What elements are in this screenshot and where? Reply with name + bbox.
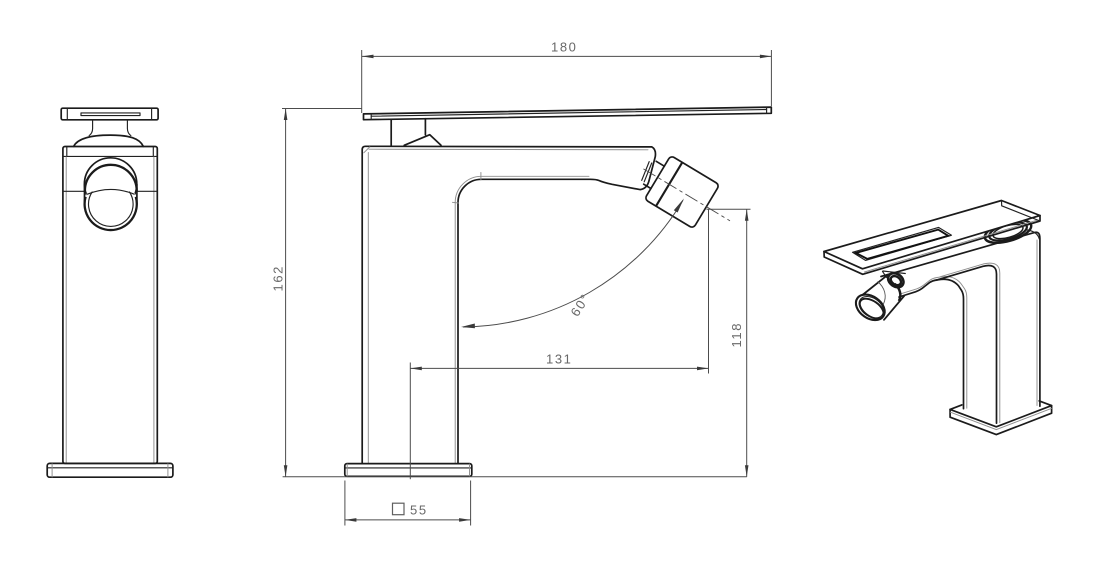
svg-text:131: 131: [546, 352, 573, 367]
svg-text:118: 118: [729, 322, 744, 348]
svg-text:180: 180: [551, 40, 578, 55]
svg-text:55: 55: [410, 503, 428, 518]
svg-text:162: 162: [270, 265, 285, 292]
